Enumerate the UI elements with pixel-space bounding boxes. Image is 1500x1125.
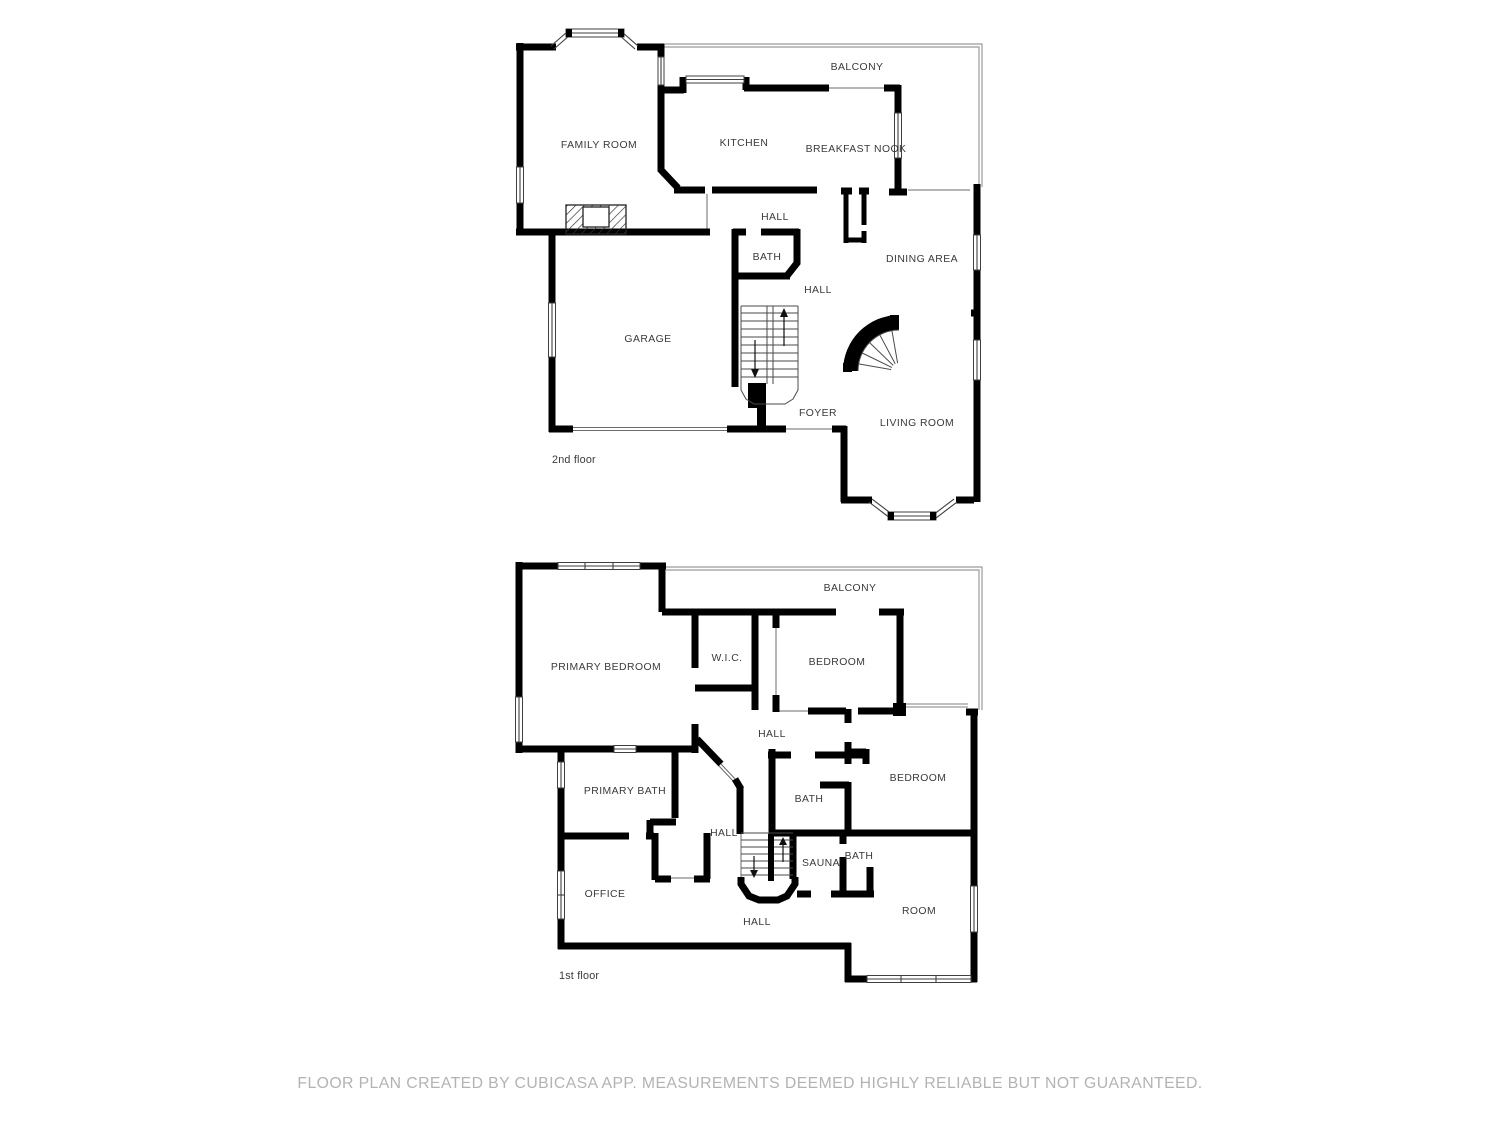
floor-plan-page: BALCONY FAMILY ROOM KITCHEN BREAKFAST NO… [0, 0, 1500, 1125]
floor-caption-2nd: 2nd floor [552, 454, 596, 466]
room-label-hall-middle: HALL [710, 828, 738, 839]
room-label-bath: BATH [753, 252, 782, 263]
balcony-railing [664, 44, 982, 187]
garage-door [573, 428, 727, 431]
curved-stair [843, 315, 899, 372]
room-label-wic: W.I.C. [712, 653, 743, 664]
corner-block [893, 703, 906, 716]
room-label-foyer: FOYER [799, 408, 837, 419]
room-label-hall-upper: HALL [758, 729, 786, 740]
room-label-bath-center: BATH [795, 794, 824, 805]
room-label-hall-lower: HALL [804, 285, 832, 296]
footer-disclaimer: FLOOR PLAN CREATED BY CUBICASA APP. MEAS… [297, 1075, 1202, 1092]
floor-plan-canvas: BALCONY FAMILY ROOM KITCHEN BREAKFAST NO… [0, 0, 1500, 1125]
walls [516, 43, 980, 502]
room-label-room: ROOM [902, 906, 936, 917]
dining-closet [844, 188, 866, 243]
room-label-hall-lower: HALL [743, 917, 771, 928]
room-label-family-room: FAMILY ROOM [561, 140, 637, 151]
room-label-bath-small: BATH [845, 851, 874, 862]
room-label-sauna: SAUNA [802, 858, 840, 869]
fireplace [566, 205, 626, 234]
bay-window-family [551, 29, 638, 49]
second-floor-plan: BALCONY FAMILY ROOM KITCHEN BREAKFAST NO… [516, 29, 982, 520]
room-label-kitchen: KITCHEN [720, 138, 769, 149]
room-label-bedroom-upper: BEDROOM [809, 657, 866, 668]
bay-window-living [869, 499, 957, 520]
room-label-garage: GARAGE [624, 334, 671, 345]
room-label-breakfast-nook: BREAKFAST NOOK [806, 144, 907, 155]
room-label-living-room: LIVING ROOM [880, 418, 954, 429]
room-label-primary-bath: PRIMARY BATH [584, 786, 666, 797]
room-label-office: OFFICE [585, 889, 626, 900]
room-label-balcony: BALCONY [824, 583, 877, 594]
room-label-primary-bedroom: PRIMARY BEDROOM [551, 662, 661, 673]
room-label-bedroom-right: BEDROOM [890, 773, 947, 784]
floor-caption-1st: 1st floor [559, 970, 599, 982]
staircase [741, 833, 793, 881]
room-label-hall-upper: HALL [761, 212, 789, 223]
first-floor-plan: BALCONY PRIMARY BEDROOM W.I.C. BEDROOM H… [516, 562, 983, 983]
room-label-balcony: BALCONY [831, 62, 884, 73]
room-label-dining-area: DINING AREA [886, 254, 958, 265]
